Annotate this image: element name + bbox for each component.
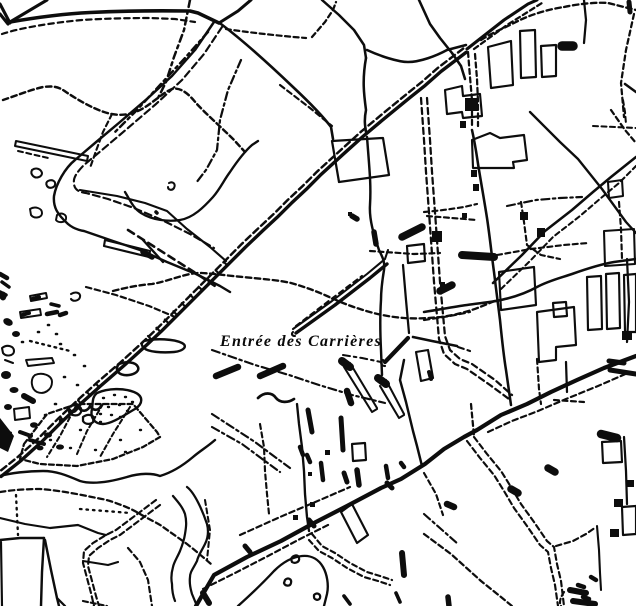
svg-text:Entrée des Carrières: Entrée des Carrières [219,333,382,350]
